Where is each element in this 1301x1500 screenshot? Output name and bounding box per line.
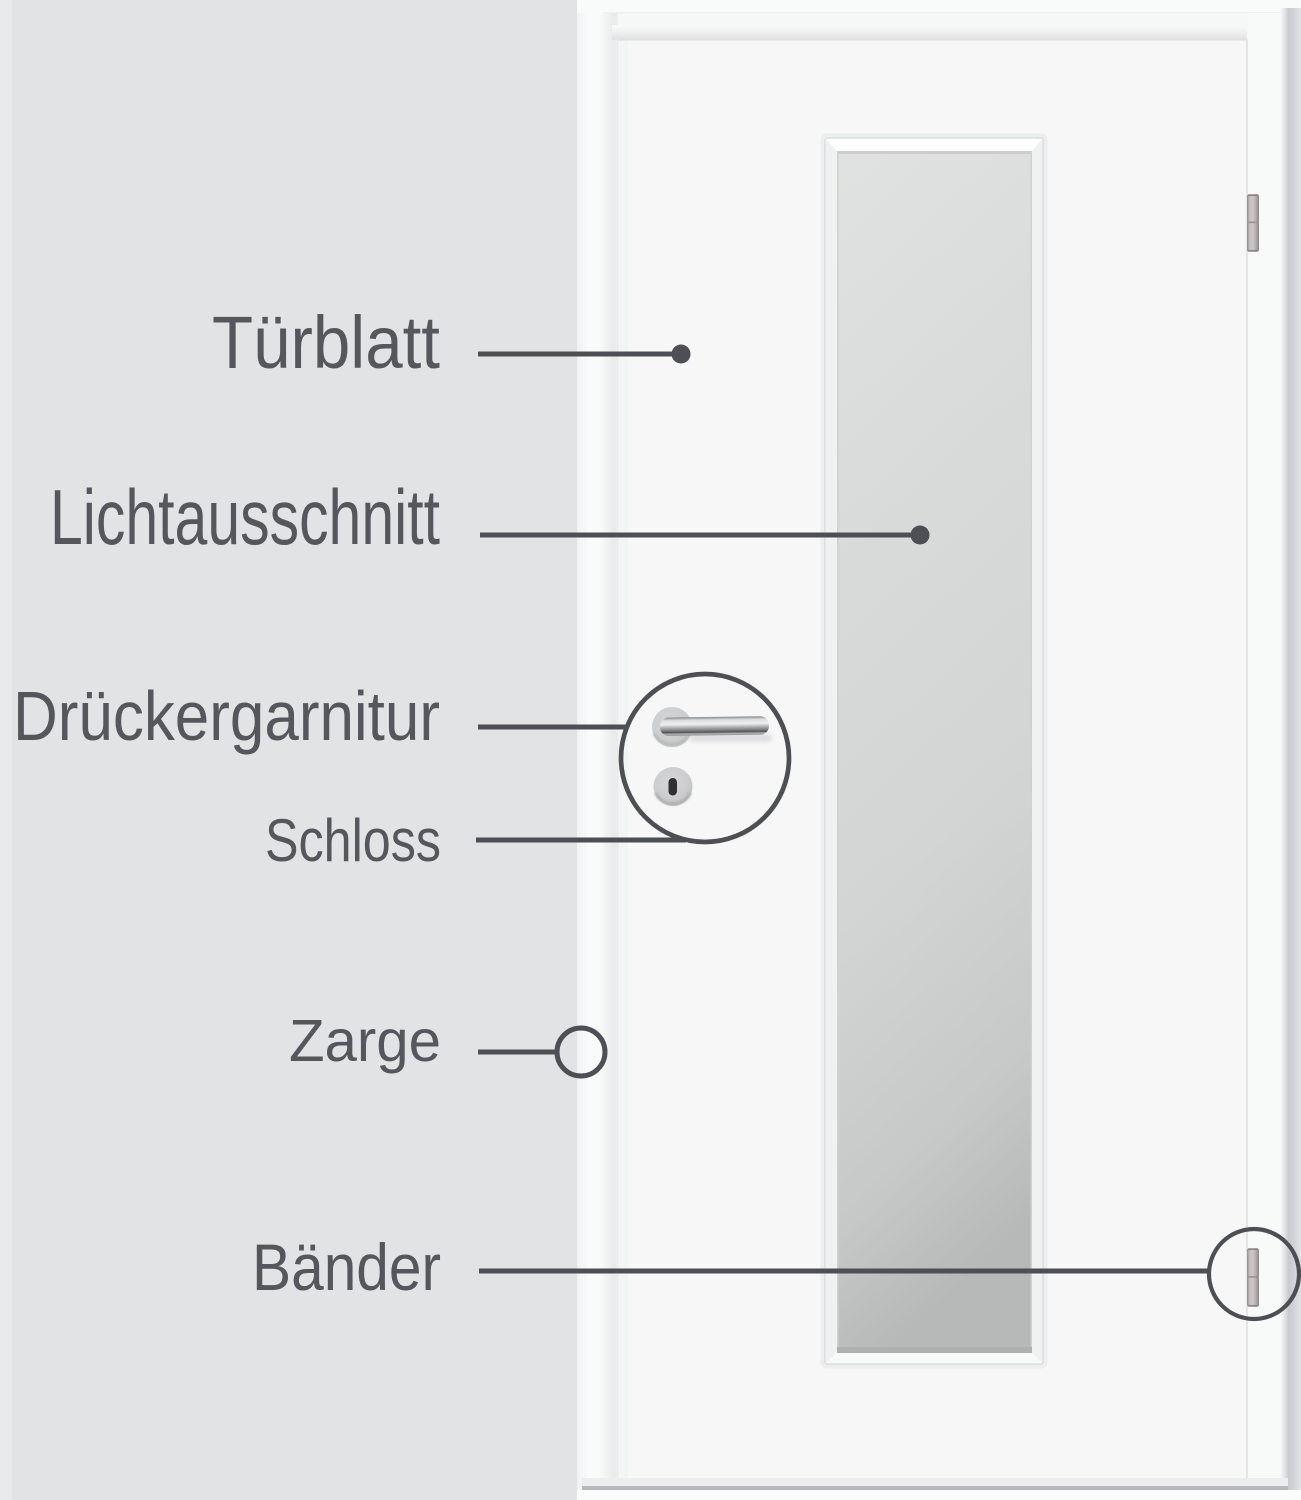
- svg-text:Schloss: Schloss: [265, 807, 441, 874]
- svg-text:Lichtausschnitt: Lichtausschnitt: [50, 473, 440, 561]
- svg-text:Drückergarnitur: Drückergarnitur: [13, 677, 440, 755]
- svg-text:Zarge: Zarge: [289, 1008, 441, 1074]
- svg-text:Türblatt: Türblatt: [212, 301, 440, 384]
- svg-text:Bänder: Bänder: [252, 1230, 441, 1304]
